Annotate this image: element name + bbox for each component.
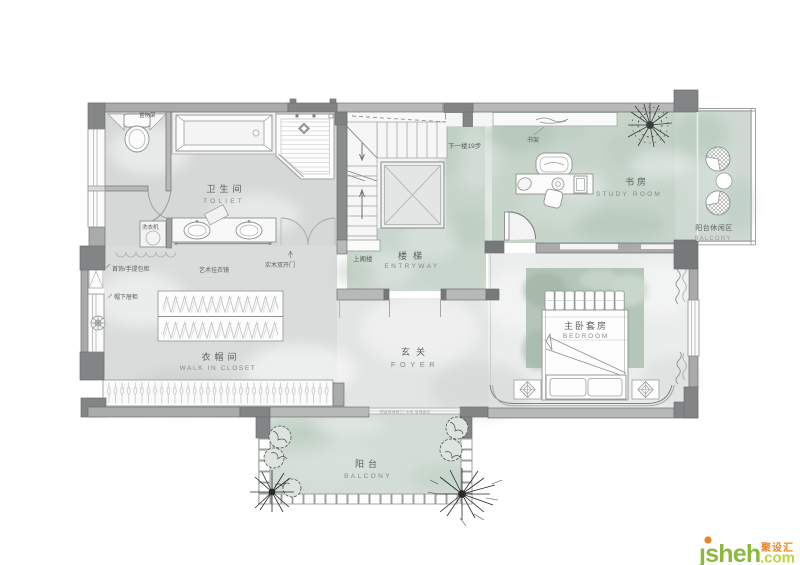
- svg-text:置物架: 置物架: [139, 111, 156, 119]
- svg-text:艺术挂衣镜: 艺术挂衣镜: [199, 266, 229, 274]
- svg-text:预留玻璃移门 中间 玻璃固定: 预留玻璃移门 中间 玻璃固定: [380, 409, 431, 414]
- svg-text:首饰/手提包柜: 首饰/手提包柜: [112, 265, 150, 273]
- svg-text:BALCONY: BALCONY: [344, 473, 392, 480]
- svg-text:ENTRYWAY: ENTRYWAY: [384, 263, 439, 270]
- svg-text:BALCONY: BALCONY: [694, 236, 731, 242]
- svg-text:衣帽间: 衣帽间: [201, 351, 240, 362]
- svg-text:主卧套房: 主卧套房: [564, 320, 608, 331]
- svg-text:STUDY ROOM: STUDY ROOM: [596, 191, 662, 198]
- svg-text:帽下屉柜: 帽下屉柜: [114, 293, 138, 301]
- svg-text:聚设汇: 聚设汇: [760, 541, 794, 554]
- svg-text:书架: 书架: [527, 136, 539, 144]
- svg-text:ȷsheh: ȷsheh: [698, 540, 760, 565]
- svg-text:BEDROOM: BEDROOM: [563, 333, 609, 340]
- svg-text:FOYER: FOYER: [391, 360, 439, 369]
- svg-text:实木双开门: 实木双开门: [265, 261, 295, 269]
- svg-text:阳台休闲区: 阳台休闲区: [695, 223, 733, 232]
- svg-text:WALK IN CLOSET: WALK IN CLOSET: [180, 365, 257, 372]
- svg-text:洗衣机: 洗衣机: [142, 223, 159, 231]
- svg-text:上阁楼: 上阁楼: [353, 254, 373, 263]
- svg-text:TOLIET: TOLIET: [203, 198, 245, 205]
- svg-text:卫生间: 卫生间: [206, 183, 245, 194]
- svg-text:楼梯: 楼梯: [398, 250, 428, 261]
- svg-text:下一楼19步: 下一楼19步: [448, 141, 482, 150]
- svg-text:阳台: 阳台: [355, 458, 381, 469]
- svg-text:玄关: 玄关: [401, 346, 431, 357]
- svg-text:书房: 书房: [625, 176, 649, 187]
